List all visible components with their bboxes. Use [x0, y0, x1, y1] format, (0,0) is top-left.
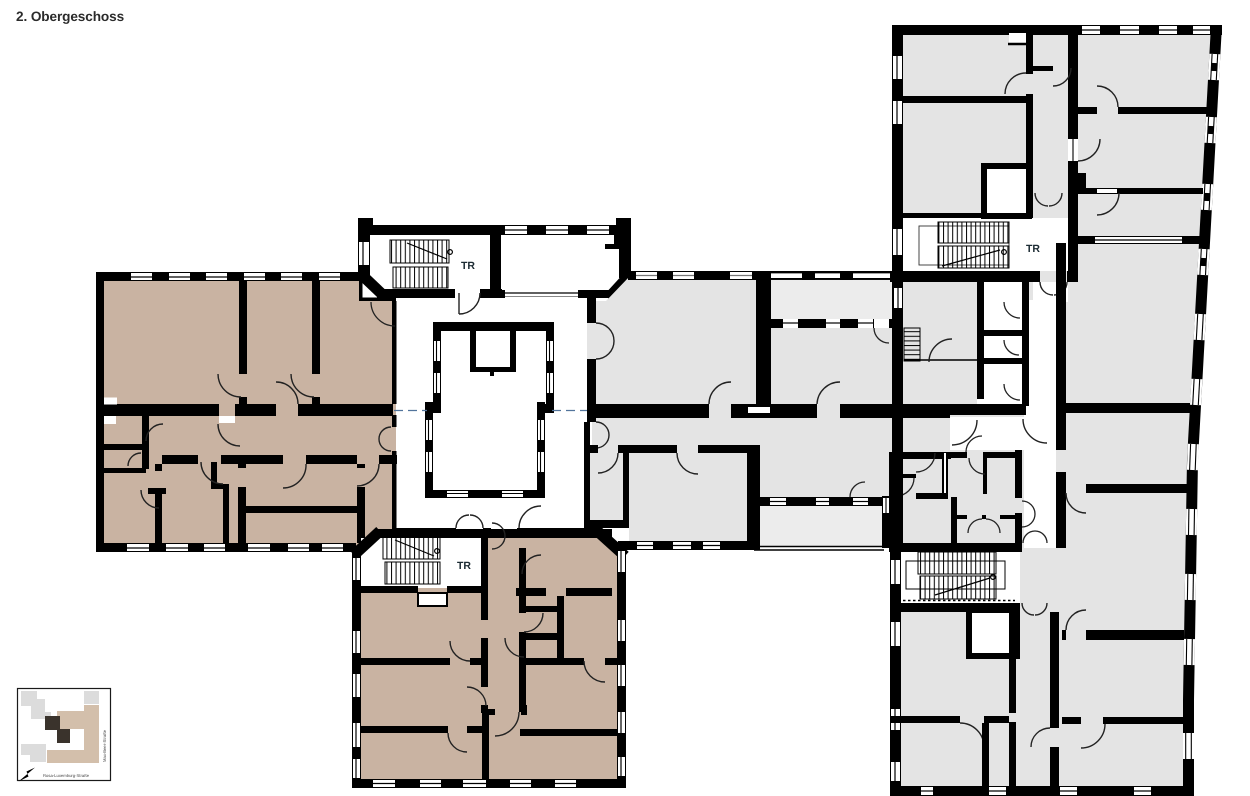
svg-text:Rosa-Luxemburg-Straße: Rosa-Luxemburg-Straße — [43, 773, 90, 778]
svg-text:TR: TR — [457, 560, 471, 572]
svg-text:2. Obergeschoss: 2. Obergeschoss — [16, 9, 124, 24]
svg-text:TR: TR — [461, 260, 475, 272]
svg-text:TR: TR — [1026, 243, 1040, 255]
svg-text:Max-Beer-Straße: Max-Beer-Straße — [102, 729, 107, 762]
